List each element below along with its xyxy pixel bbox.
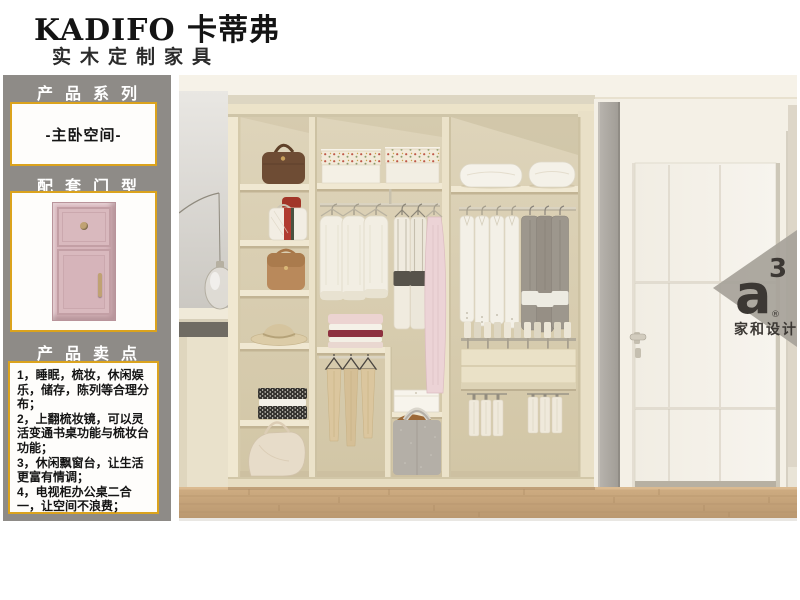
tan-handbag [267, 250, 305, 290]
wood-floor [179, 487, 797, 521]
door-pull-handle [98, 273, 102, 297]
pink-door-illustration [52, 202, 116, 321]
registered-mark-icon: ® [771, 310, 780, 320]
drawer-unit [461, 322, 576, 391]
door-drawer [57, 207, 111, 247]
folded-clothes-stack [328, 314, 383, 348]
hanging-jumpsuits [394, 204, 428, 329]
hanging-gray-garments [522, 206, 569, 332]
watermark-superscript: 3 [769, 254, 787, 284]
door-type-box [10, 191, 157, 332]
product-poster: KADIFO 卡蒂弗 实木定制家具 产品系列 -主卧空间- 配套门型 产品卖点 … [0, 0, 800, 600]
series-value: -主卧空间- [46, 124, 122, 145]
selling-point: 3，休闲飘窗台，让生活更富有情调； [17, 456, 150, 485]
folded-patterned-clothes [258, 388, 307, 419]
door-panel [57, 249, 111, 315]
showroom-photo: a 3 ® 家和设计 [179, 75, 797, 521]
sidebar: 产品系列 -主卧空间- 配套门型 产品卖点 1，睡眠，梳妆，休闲娱乐，储存，陈列… [3, 75, 171, 521]
selling-points-box: 1，睡眠，梳妆，休闲娱乐，储存，陈列等合理分布； 2，上翻梳妆镜，可以灵活变通书… [8, 361, 159, 514]
pillows [460, 162, 575, 189]
door-knob [80, 222, 88, 230]
white-striped-bag [269, 205, 307, 240]
hanging-pink-dress [425, 204, 446, 393]
room-scene: a 3 ® 家和设计 [179, 75, 797, 521]
hanging-shirts [320, 204, 388, 300]
brand-tagline: 实木定制家具 [52, 42, 220, 69]
selling-point: 4，电视柜办公桌二合一，让空间不浪费； [17, 485, 150, 514]
wall-pillar [594, 99, 624, 487]
series-header: 产品系列 [3, 80, 171, 104]
selling-point: 1，睡眠，梳妆，休闲娱乐，储存，陈列等合理分布； [17, 368, 150, 412]
series-box: -主卧空间- [10, 102, 157, 166]
watermark-letter: a [735, 263, 771, 326]
selling-point: 2，上翻梳妆镜，可以灵活变通书桌功能与梳妆台功能； [17, 412, 150, 456]
watermark-caption: 家和设计 [734, 321, 797, 338]
